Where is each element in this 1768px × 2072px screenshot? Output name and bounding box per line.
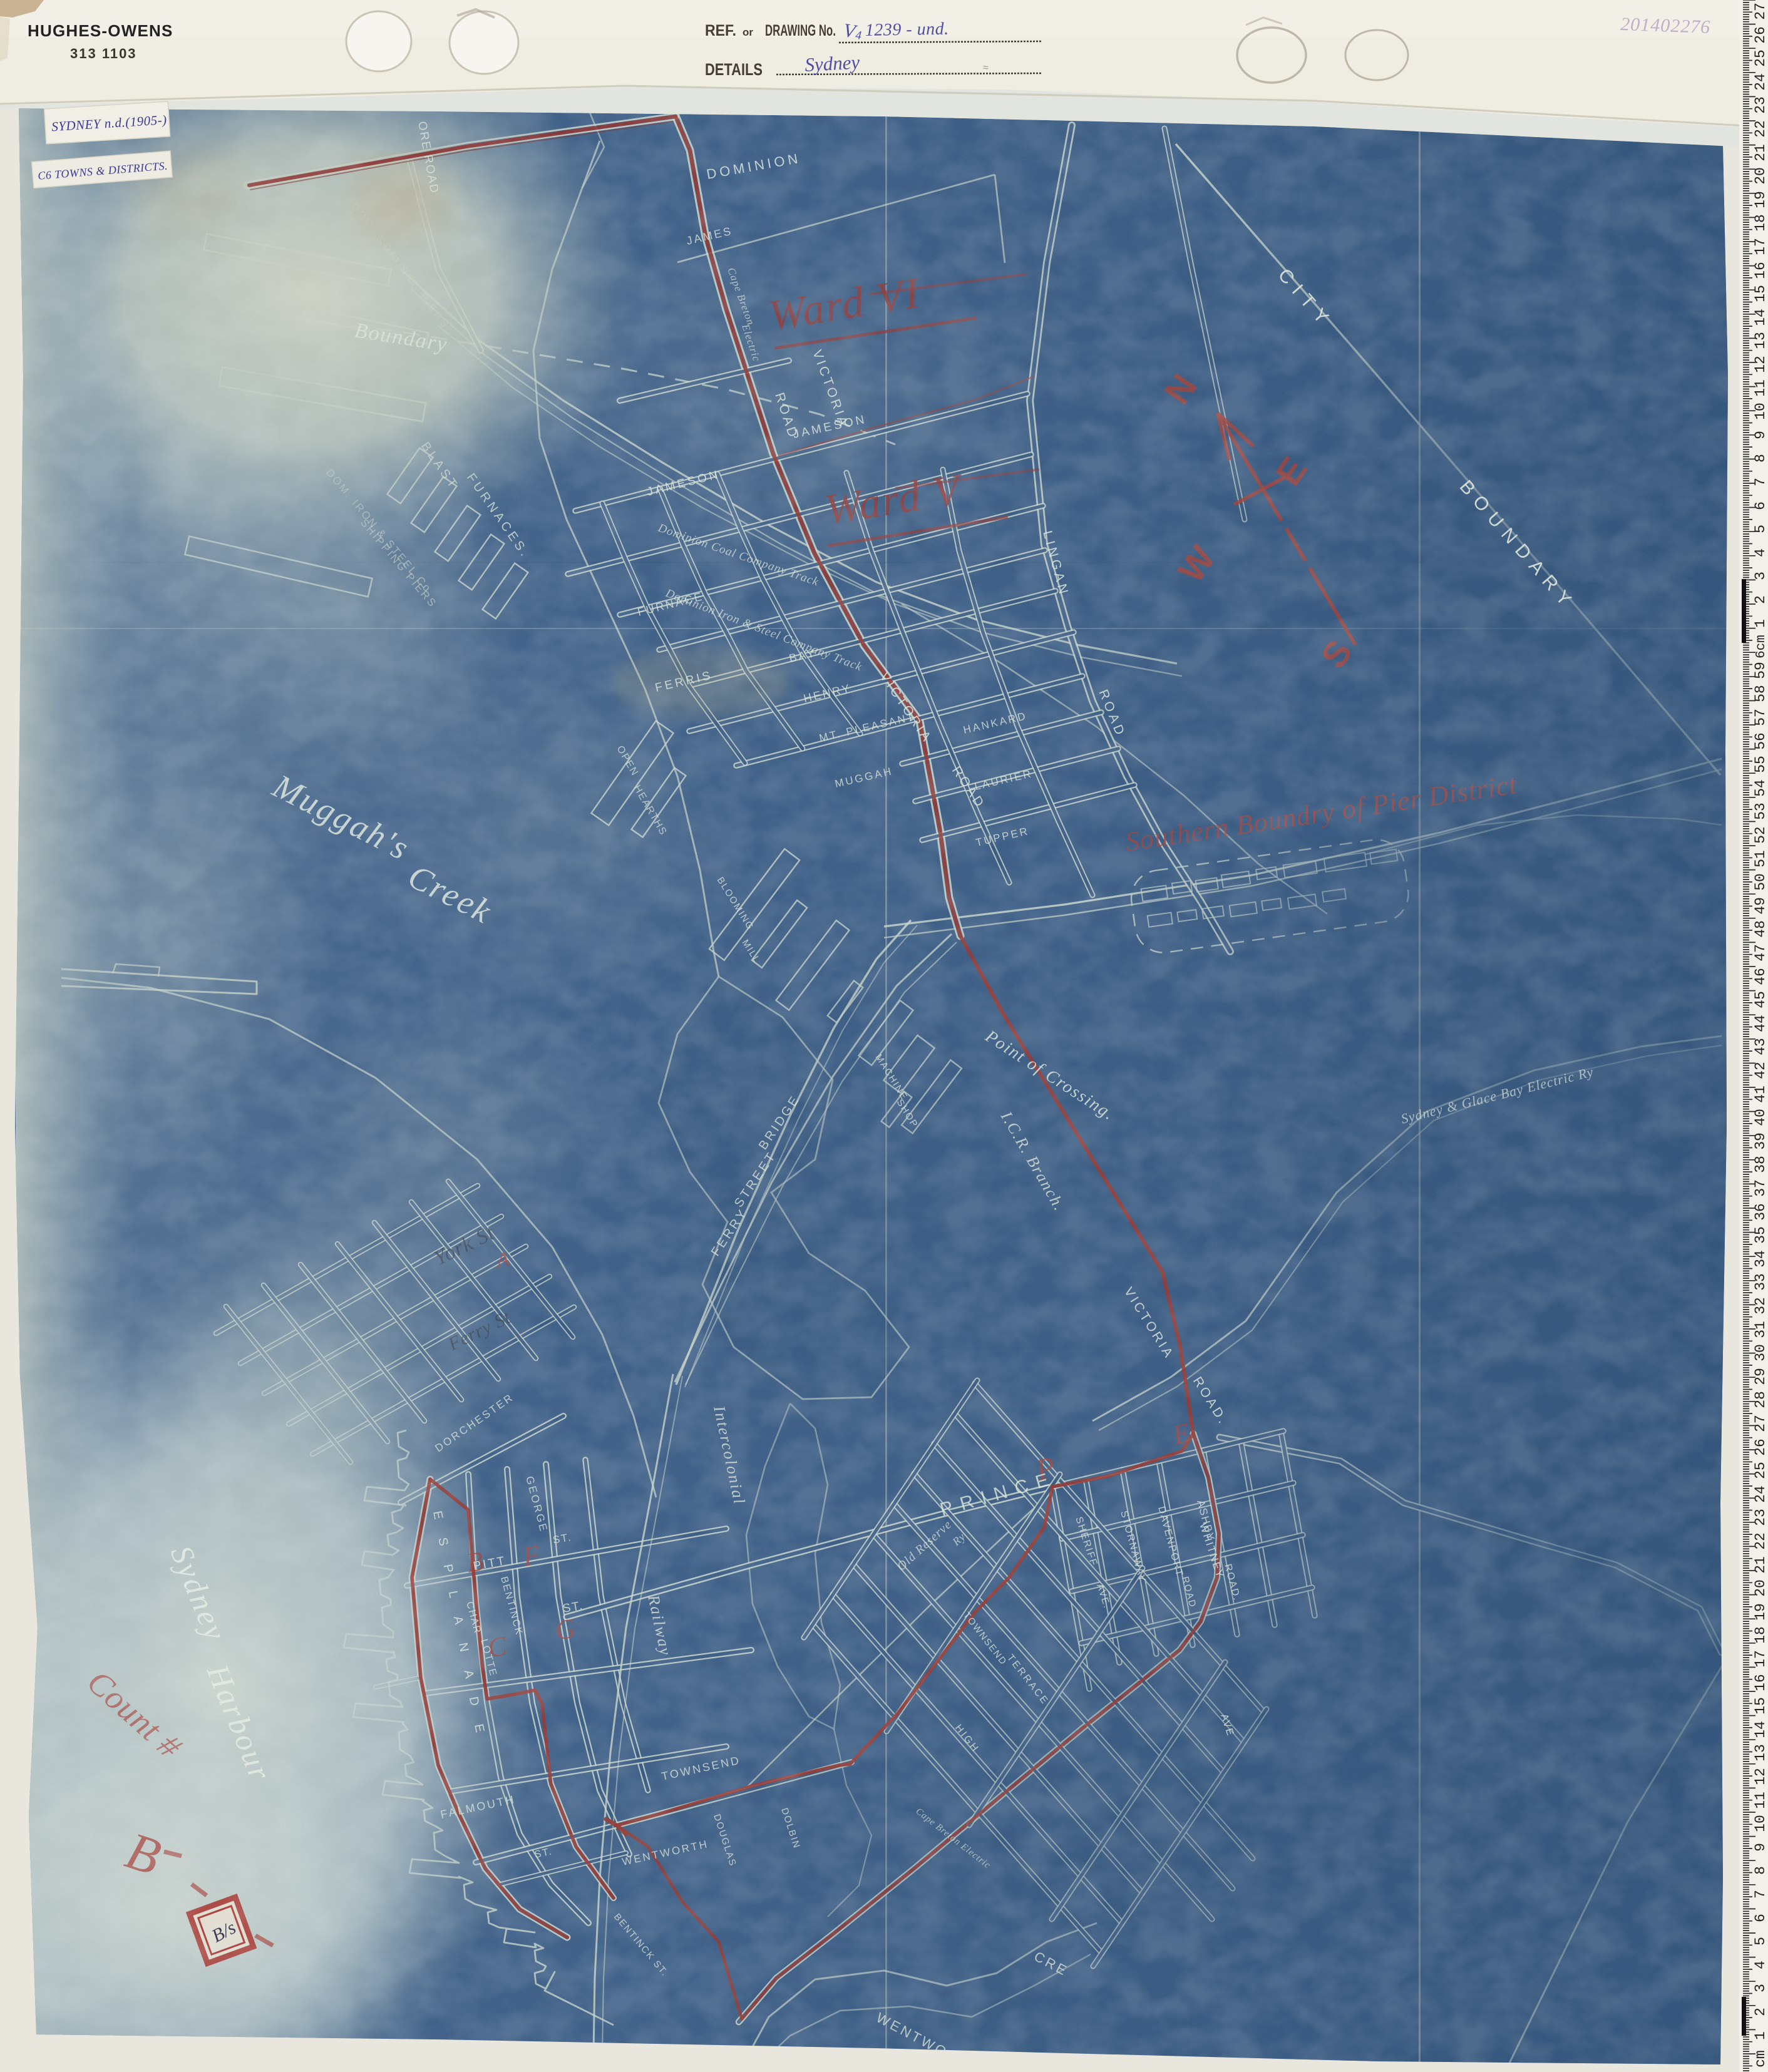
svg-text:37: 37: [1752, 1179, 1768, 1197]
svg-text:45: 45: [1752, 991, 1768, 1008]
svg-text:13: 13: [1752, 1744, 1768, 1762]
svg-text:26: 26: [1752, 1439, 1768, 1456]
svg-text:11: 11: [1752, 1792, 1768, 1809]
svg-text:46: 46: [1752, 968, 1768, 985]
svg-text:Sydney: Sydney: [804, 51, 861, 76]
svg-text:or: or: [743, 26, 753, 38]
svg-text:21: 21: [1752, 144, 1768, 162]
svg-text:43: 43: [1752, 1038, 1768, 1055]
svg-text:41: 41: [1752, 1085, 1768, 1103]
svg-text:15: 15: [1752, 285, 1768, 302]
svg-text:20: 20: [1752, 1579, 1768, 1597]
svg-text:cm: cm: [1752, 2050, 1768, 2068]
svg-text:25: 25: [1752, 49, 1768, 67]
svg-text:18: 18: [1752, 1626, 1768, 1644]
svg-text:34: 34: [1752, 1250, 1768, 1268]
svg-text:13: 13: [1752, 332, 1768, 349]
svg-text:28: 28: [1752, 1391, 1768, 1408]
svg-text:5: 5: [1752, 525, 1768, 533]
svg-text:53: 53: [1752, 803, 1768, 820]
svg-text:313 1103: 313 1103: [70, 46, 137, 61]
svg-text:39: 39: [1752, 1132, 1768, 1150]
svg-text:25: 25: [1752, 1462, 1768, 1479]
svg-text:50: 50: [1752, 873, 1768, 891]
svg-text:7: 7: [1752, 1890, 1768, 1899]
svg-text:16: 16: [1752, 262, 1768, 279]
svg-text:1: 1: [1752, 2031, 1768, 2040]
svg-text:38: 38: [1752, 1156, 1768, 1173]
svg-text:1239 - und.: 1239 - und.: [865, 19, 949, 40]
svg-text:31: 31: [1752, 1321, 1768, 1338]
svg-text:30: 30: [1752, 1344, 1768, 1362]
svg-text:DRAWING No.: DRAWING No.: [765, 22, 836, 39]
svg-text:REF.: REF.: [705, 22, 736, 39]
svg-text:11: 11: [1752, 379, 1768, 397]
svg-text:49: 49: [1752, 897, 1768, 915]
svg-text:18: 18: [1752, 214, 1768, 232]
svg-text:52: 52: [1752, 826, 1768, 844]
svg-text:4: 4: [1752, 548, 1768, 557]
svg-text:19: 19: [1752, 191, 1768, 208]
svg-text:27: 27: [1752, 3, 1768, 20]
svg-text:23: 23: [1752, 96, 1768, 114]
svg-text:47: 47: [1752, 944, 1768, 962]
svg-text:9: 9: [1752, 431, 1768, 439]
svg-text:6cm: 6cm: [1754, 635, 1768, 659]
svg-text:9: 9: [1752, 1843, 1768, 1852]
svg-text:3: 3: [1752, 1984, 1768, 1993]
svg-text:26: 26: [1752, 26, 1768, 44]
svg-text:8: 8: [1752, 1866, 1768, 1875]
svg-text:57: 57: [1752, 709, 1768, 726]
svg-text:27: 27: [1752, 1415, 1768, 1432]
svg-text:24: 24: [1752, 73, 1768, 91]
svg-text:5: 5: [1752, 1937, 1768, 1946]
svg-text:3: 3: [1752, 572, 1768, 580]
svg-text:17: 17: [1752, 238, 1768, 255]
svg-text:56: 56: [1752, 732, 1768, 750]
svg-text:23: 23: [1752, 1509, 1768, 1526]
svg-text:2: 2: [1752, 2008, 1768, 2016]
svg-text:10: 10: [1752, 403, 1768, 420]
svg-text:19: 19: [1752, 1603, 1768, 1621]
svg-text:29: 29: [1752, 1368, 1768, 1385]
svg-text:22: 22: [1752, 120, 1768, 138]
svg-text:24: 24: [1752, 1485, 1768, 1503]
svg-text:14: 14: [1752, 309, 1768, 326]
svg-text:59: 59: [1752, 662, 1768, 679]
svg-text:15: 15: [1752, 1697, 1768, 1715]
svg-text:16: 16: [1752, 1674, 1768, 1691]
svg-text:35: 35: [1752, 1226, 1768, 1244]
svg-text:51: 51: [1752, 850, 1768, 868]
svg-text:7: 7: [1752, 478, 1768, 486]
svg-text:DETAILS: DETAILS: [705, 60, 763, 79]
svg-text:21: 21: [1752, 1556, 1768, 1574]
svg-text:4: 4: [1752, 1961, 1768, 1969]
svg-text:40: 40: [1752, 1109, 1768, 1126]
svg-text:12: 12: [1752, 356, 1768, 373]
svg-text:12: 12: [1752, 1768, 1768, 1785]
svg-text:1: 1: [1752, 619, 1768, 628]
svg-text:55: 55: [1752, 756, 1768, 773]
svg-text:33: 33: [1752, 1273, 1768, 1291]
svg-text:22: 22: [1752, 1532, 1768, 1550]
svg-text:58: 58: [1752, 685, 1768, 702]
svg-text:42: 42: [1752, 1062, 1768, 1079]
svg-text:48: 48: [1752, 920, 1768, 938]
svg-text:201402276: 201402276: [1620, 14, 1711, 38]
svg-text:6: 6: [1752, 1914, 1768, 1922]
svg-text:17: 17: [1752, 1650, 1768, 1668]
svg-text:≈: ≈: [983, 63, 989, 73]
svg-text:54: 54: [1752, 779, 1768, 797]
svg-text:36: 36: [1752, 1203, 1768, 1221]
svg-text:32: 32: [1752, 1297, 1768, 1315]
svg-text:8: 8: [1752, 454, 1768, 463]
svg-text:20: 20: [1752, 167, 1768, 185]
svg-text:6: 6: [1752, 501, 1768, 510]
svg-text:10: 10: [1752, 1815, 1768, 1832]
svg-text:44: 44: [1752, 1015, 1768, 1032]
svg-text:2: 2: [1752, 595, 1768, 604]
svg-text:HUGHES-OWENS: HUGHES-OWENS: [28, 21, 173, 40]
svg-text:14: 14: [1752, 1721, 1768, 1738]
